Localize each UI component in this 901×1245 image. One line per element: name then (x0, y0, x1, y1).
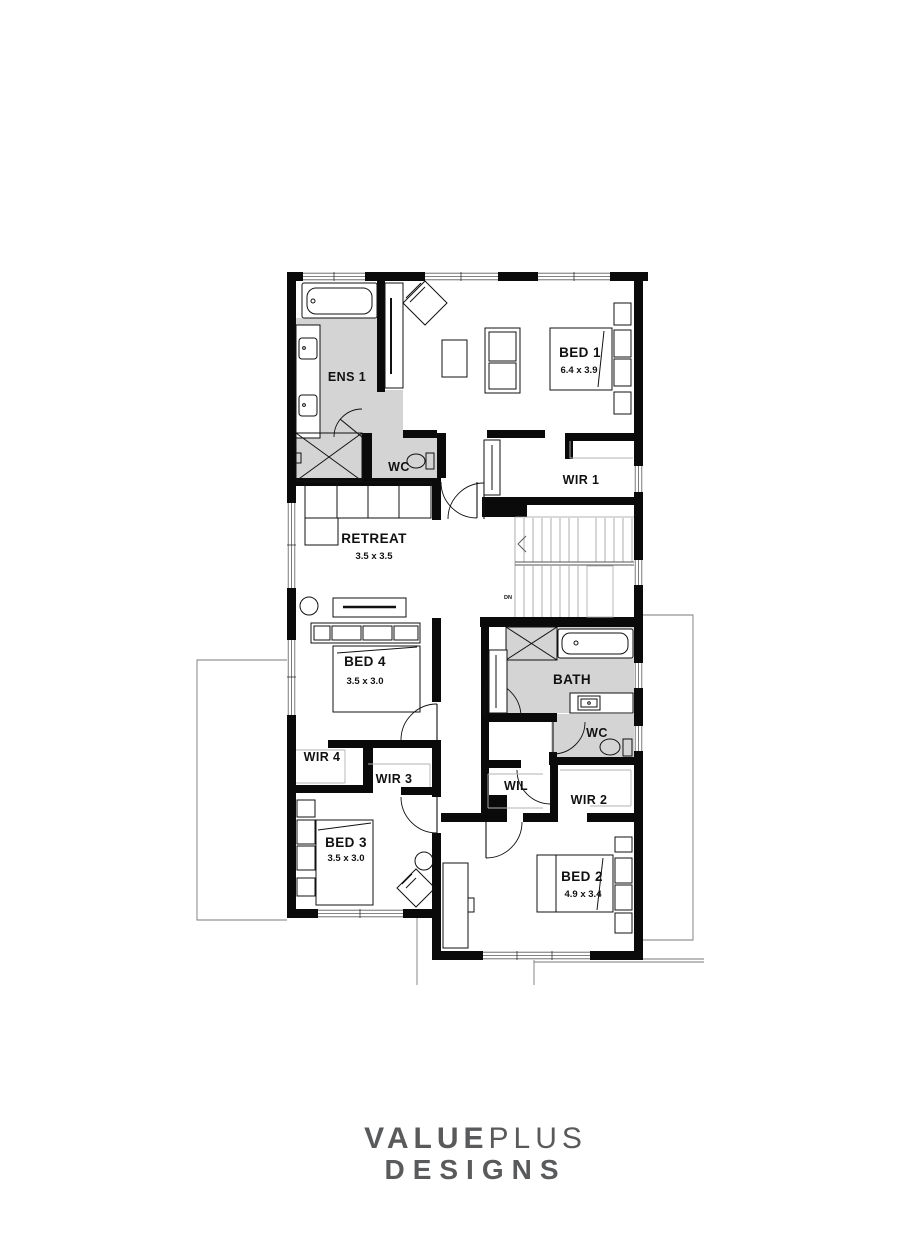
dims-bed2: 4.9 x 3.4 (565, 889, 603, 900)
bedside-table (297, 878, 315, 896)
tv-unit (333, 598, 406, 617)
bedside-table (297, 800, 315, 817)
staircase: DN (504, 517, 634, 617)
label-wc-lower: WC (586, 726, 608, 740)
bed4-door (401, 704, 437, 740)
label-bed3: BED 3 (325, 835, 367, 850)
label-ens1: ENS 1 (328, 370, 366, 384)
dims-bed1: 6.4 x 3.9 (561, 365, 598, 376)
label-bed4: BED 4 (344, 654, 386, 669)
label-wir3: WIR 3 (376, 772, 413, 786)
retreat-furniture (300, 482, 431, 617)
stairs-down-label: DN (504, 595, 512, 601)
brand-word-designs: DESIGNS (25, 1155, 901, 1186)
pillow (614, 330, 631, 357)
stair-direction-arrow (518, 536, 526, 552)
brand-logo: VALUEPLUS DESIGNS (25, 1122, 901, 1186)
bedside-table (614, 303, 631, 325)
dims-bed3: 3.5 x 3.0 (328, 853, 365, 864)
floor-plan: DN (0, 0, 901, 1245)
hall-cupboard (484, 440, 500, 495)
label-wc-upper: WC (388, 460, 410, 474)
bed2-furniture (443, 837, 632, 948)
bedside-table (614, 392, 631, 414)
vanity (296, 325, 320, 438)
side-table (415, 852, 433, 870)
brand-word-value: VALUE (364, 1122, 488, 1155)
pillow (297, 846, 315, 870)
pillow (614, 359, 631, 386)
page: { "plan": { "rooms": [ {"name": "ENS 1"}… (0, 0, 901, 1245)
brand-word-plus: PLUS (489, 1122, 587, 1155)
dims-bed4: 3.5 x 3.0 (347, 676, 384, 687)
label-retreat: RETREAT (341, 531, 407, 546)
chair (397, 869, 435, 907)
linen-cupboard (489, 650, 507, 713)
bathtub (558, 629, 633, 658)
robe-cabinet (385, 283, 403, 388)
bedside-table (615, 913, 632, 933)
bed-foot (537, 855, 556, 912)
bed3-furniture (297, 800, 435, 907)
dims-retreat: 3.5 x 3.5 (356, 551, 394, 562)
label-bed1: BED 1 (559, 345, 601, 360)
pillow (615, 885, 632, 910)
label-bed2: BED 2 (561, 869, 603, 884)
label-bath: BATH (553, 672, 591, 687)
bed2-door (486, 822, 522, 858)
wir1-hall-door (448, 483, 484, 519)
wardrobe (311, 623, 420, 643)
side-table (442, 340, 467, 377)
label-wil: WIL (504, 779, 528, 793)
sofa (485, 328, 520, 393)
desk (443, 863, 474, 948)
label-wir4: WIR 4 (304, 750, 341, 764)
brand-line1: VALUEPLUS (25, 1122, 901, 1155)
vanity (570, 693, 633, 713)
side-table (300, 597, 318, 615)
bedside-table (615, 837, 632, 852)
retreat-door (441, 482, 477, 518)
label-wir1: WIR 1 (563, 473, 600, 487)
wir1-shelves (570, 441, 633, 458)
bed3-door (401, 797, 437, 833)
label-wir2: WIR 2 (571, 793, 608, 807)
pillow (615, 858, 632, 883)
pillow (297, 820, 315, 844)
